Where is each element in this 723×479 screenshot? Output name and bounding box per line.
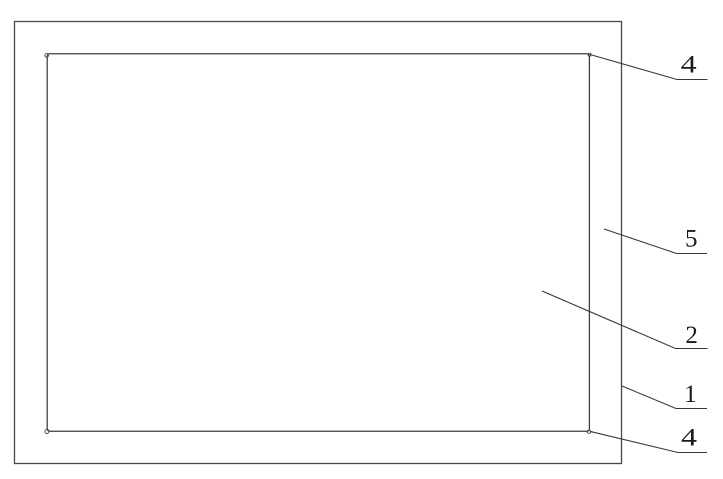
svg-text:1: 1 bbox=[684, 381, 697, 408]
svg-text:4: 4 bbox=[681, 425, 698, 452]
svg-text:5: 5 bbox=[685, 226, 698, 253]
svg-text:4: 4 bbox=[681, 52, 698, 79]
svg-text:2: 2 bbox=[685, 322, 698, 349]
